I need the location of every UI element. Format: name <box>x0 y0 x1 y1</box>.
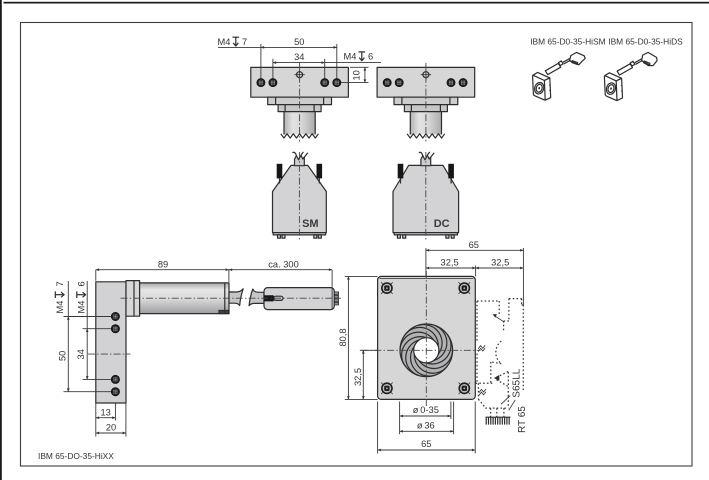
svg-text:IBM 65-DO-35-HiXX: IBM 65-DO-35-HiXX <box>38 451 114 461</box>
svg-text:6: 6 <box>368 52 373 62</box>
svg-text:ca. 300: ca. 300 <box>268 259 299 269</box>
svg-text:65: 65 <box>421 439 431 449</box>
svg-text:M4: M4 <box>218 37 231 47</box>
svg-text:ø 0-35: ø 0-35 <box>413 405 439 415</box>
svg-text:7: 7 <box>242 37 247 47</box>
svg-text:M4: M4 <box>76 301 86 314</box>
svg-text:M4: M4 <box>344 52 357 62</box>
svg-text:SM: SM <box>302 218 319 230</box>
svg-text:ø 36: ø 36 <box>417 420 435 430</box>
svg-text:32,5: 32,5 <box>441 258 459 268</box>
svg-text:32,5: 32,5 <box>491 258 509 268</box>
svg-text:6: 6 <box>76 281 86 286</box>
svg-text:32,5: 32,5 <box>353 368 363 386</box>
svg-text:50: 50 <box>294 37 304 47</box>
svg-text:50: 50 <box>57 351 67 361</box>
svg-text:M4: M4 <box>55 301 65 314</box>
svg-text:80,8: 80,8 <box>338 328 348 346</box>
svg-text:7: 7 <box>55 281 65 286</box>
svg-text:34: 34 <box>294 52 304 62</box>
svg-text:20: 20 <box>106 423 116 433</box>
svg-text:34: 34 <box>76 349 86 359</box>
svg-text:10: 10 <box>352 70 362 80</box>
svg-text:DC: DC <box>434 218 450 230</box>
svg-text:89: 89 <box>158 259 168 269</box>
svg-text:65: 65 <box>469 240 479 250</box>
svg-text:S65LL: S65LL <box>511 368 522 397</box>
svg-text:RT 65: RT 65 <box>517 406 528 433</box>
svg-text:IBM 65-D0-35-HiDS: IBM 65-D0-35-HiDS <box>608 36 683 46</box>
svg-text:IBM 65-D0-35-HiSM: IBM 65-D0-35-HiSM <box>530 36 605 46</box>
svg-text:13: 13 <box>101 407 111 417</box>
